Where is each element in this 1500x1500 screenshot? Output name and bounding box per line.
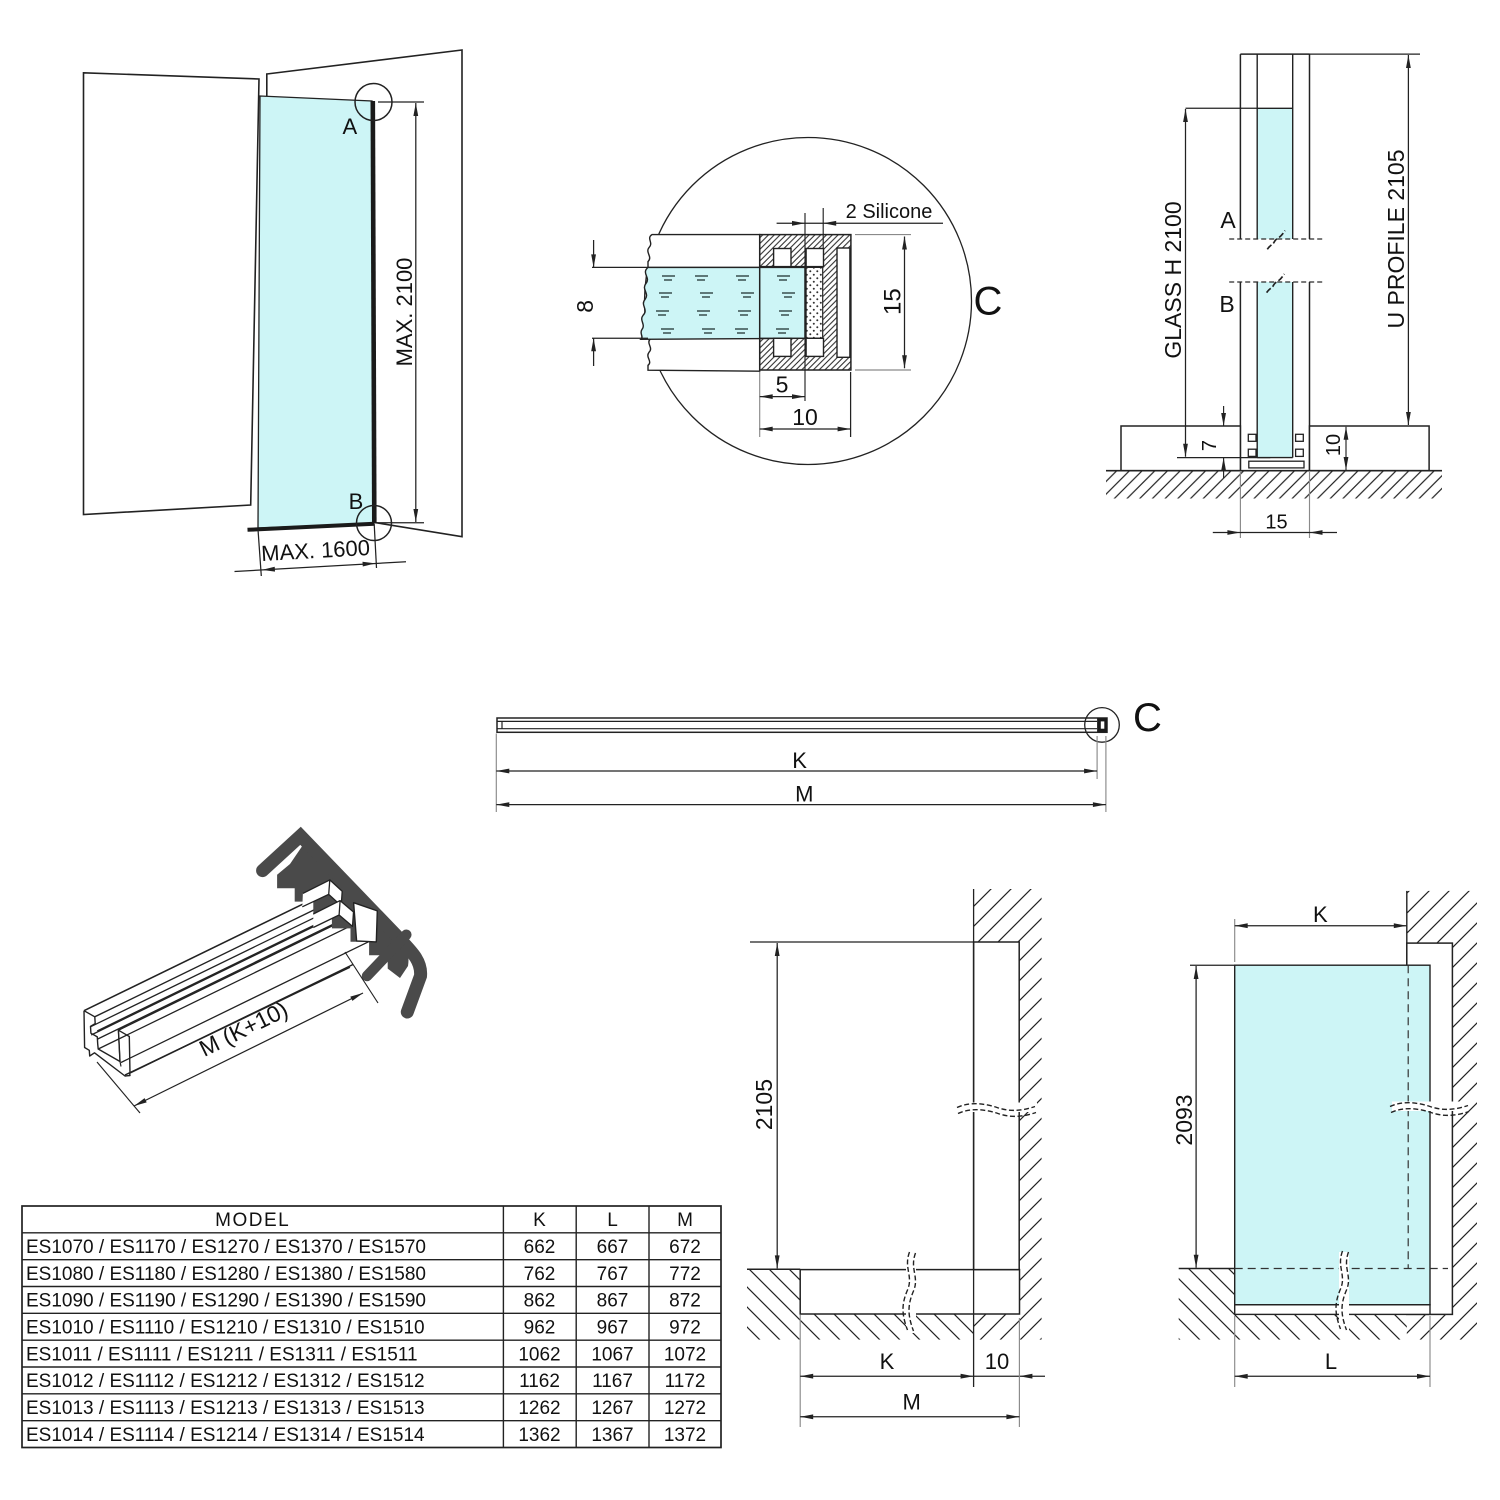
svg-text:10: 10 [792, 404, 818, 430]
svg-text:B: B [349, 489, 364, 514]
svg-text:967: 967 [597, 1318, 629, 1339]
svg-text:B: B [1219, 291, 1234, 317]
svg-text:767: 767 [597, 1264, 629, 1285]
svg-text:ES1090 / ES1190 / ES1290 / ES1: ES1090 / ES1190 / ES1290 / ES1390 / ES15… [26, 1291, 426, 1312]
svg-text:1272: 1272 [664, 1398, 706, 1419]
svg-text:972: 972 [669, 1318, 701, 1339]
svg-text:872: 872 [669, 1291, 701, 1312]
svg-text:ES1070 / ES1170 / ES1270 / ES1: ES1070 / ES1170 / ES1270 / ES1370 / ES15… [26, 1237, 426, 1258]
svg-text:ES1080 / ES1180 / ES1280 / ES1: ES1080 / ES1180 / ES1280 / ES1380 / ES15… [26, 1264, 426, 1285]
svg-text:10: 10 [1323, 434, 1345, 456]
svg-text:2093: 2093 [1171, 1094, 1197, 1145]
svg-text:672: 672 [669, 1237, 701, 1258]
svg-text:1172: 1172 [665, 1371, 706, 1392]
svg-text:C: C [1133, 696, 1162, 740]
svg-text:ES1010 / ES1110 / ES1210 / ES1: ES1010 / ES1110 / ES1210 / ES1310 / ES15… [26, 1318, 425, 1339]
svg-text:15: 15 [880, 288, 907, 315]
svg-text:L: L [607, 1210, 618, 1231]
svg-text:1162: 1162 [519, 1371, 560, 1392]
svg-text:862: 862 [524, 1291, 556, 1312]
svg-text:2105: 2105 [751, 1079, 777, 1130]
svg-text:M: M [677, 1210, 693, 1231]
svg-text:MODEL: MODEL [215, 1210, 290, 1231]
svg-text:K: K [533, 1210, 546, 1231]
svg-text:ES1013 / ES1113 / ES1213 / ES1: ES1013 / ES1113 / ES1213 / ES1313 / ES15… [26, 1398, 425, 1419]
svg-text:ES1012 / ES1112 / ES1212 / ES1: ES1012 / ES1112 / ES1212 / ES1312 / ES15… [26, 1371, 425, 1392]
svg-text:867: 867 [597, 1291, 629, 1312]
svg-text:1262: 1262 [518, 1398, 560, 1419]
svg-text:GLASS H 2100: GLASS H 2100 [1160, 201, 1186, 358]
svg-text:1267: 1267 [591, 1398, 633, 1419]
svg-text:1167: 1167 [592, 1371, 633, 1392]
svg-text:A: A [342, 114, 357, 139]
svg-text:1372: 1372 [664, 1425, 706, 1446]
svg-text:2 Silicone: 2 Silicone [846, 201, 933, 223]
svg-text:K: K [880, 1349, 895, 1374]
svg-text:ES1014 / ES1114 / ES1214 / ES1: ES1014 / ES1114 / ES1214 / ES1314 / ES15… [26, 1425, 425, 1446]
svg-text:A: A [1220, 207, 1236, 233]
svg-text:667: 667 [597, 1237, 629, 1258]
svg-text:1362: 1362 [518, 1425, 560, 1446]
svg-text:8: 8 [572, 300, 598, 313]
svg-text:7: 7 [1199, 440, 1221, 451]
svg-text:MAX. 2100: MAX. 2100 [392, 258, 417, 367]
svg-text:1062: 1062 [518, 1344, 560, 1365]
svg-text:K: K [1313, 902, 1328, 927]
svg-text:K: K [792, 748, 807, 773]
svg-text:M: M [903, 1390, 921, 1415]
svg-text:1067: 1067 [591, 1344, 633, 1365]
svg-text:C: C [974, 280, 1003, 324]
svg-text:L: L [1325, 1349, 1337, 1374]
svg-text:1072: 1072 [664, 1344, 706, 1365]
svg-text:762: 762 [524, 1264, 556, 1285]
svg-text:1367: 1367 [591, 1425, 633, 1446]
svg-text:10: 10 [985, 1349, 1009, 1374]
svg-text:U PROFILE 2105: U PROFILE 2105 [1383, 150, 1409, 329]
svg-text:ES1011 / ES1111 / ES1211 / ES1: ES1011 / ES1111 / ES1211 / ES1311 / ES15… [26, 1344, 418, 1365]
svg-text:772: 772 [669, 1264, 701, 1285]
svg-text:M: M [795, 782, 813, 807]
svg-text:662: 662 [524, 1237, 556, 1258]
svg-text:15: 15 [1265, 512, 1287, 534]
svg-text:5: 5 [776, 372, 789, 398]
svg-text:962: 962 [524, 1318, 556, 1339]
